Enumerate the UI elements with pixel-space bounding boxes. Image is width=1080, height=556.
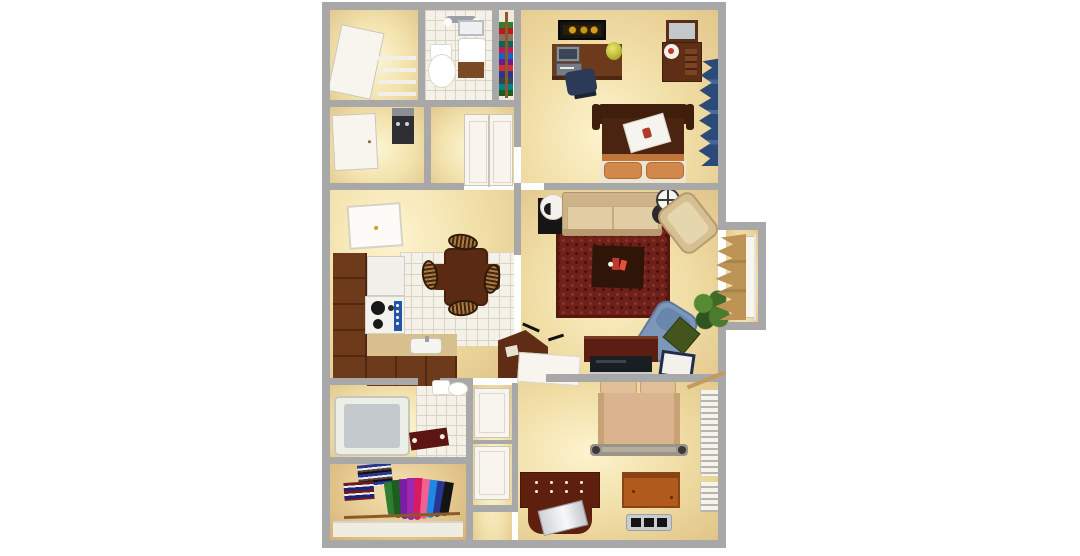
dresser-with-mirror bbox=[662, 20, 702, 82]
wall-alcove-right bbox=[758, 222, 766, 330]
dining-wall-frame bbox=[347, 202, 404, 250]
monitor-screen bbox=[559, 49, 577, 59]
frame-dot bbox=[374, 226, 378, 230]
closet-door-inset bbox=[479, 451, 505, 495]
utility-unit bbox=[392, 108, 414, 144]
red-decor bbox=[619, 260, 627, 271]
vanity-mirror bbox=[458, 20, 484, 36]
closet-door-inset bbox=[469, 121, 487, 183]
vanity-cabinet bbox=[458, 62, 484, 78]
coffee-table bbox=[591, 245, 644, 289]
wall-bath2-east bbox=[466, 378, 473, 540]
range-stove bbox=[365, 296, 405, 334]
range-panel bbox=[394, 301, 402, 331]
tv-glare bbox=[596, 360, 626, 363]
wall-bedroom1-west bbox=[514, 2, 521, 147]
closet-pole bbox=[505, 12, 508, 98]
dining-table bbox=[444, 248, 488, 306]
dresser2-top bbox=[520, 472, 600, 508]
bed1-pillow bbox=[604, 162, 642, 179]
decor-plate bbox=[664, 44, 679, 59]
wall-hall-mid bbox=[424, 100, 431, 190]
lamp-shade-shadow bbox=[544, 203, 556, 215]
burner bbox=[371, 301, 385, 315]
bed1-pillow bbox=[646, 162, 684, 179]
folded-clothes-stack bbox=[343, 481, 374, 501]
closet-door-split bbox=[488, 115, 490, 187]
vent-grates bbox=[631, 518, 641, 527]
wall-hall-south bbox=[330, 183, 464, 190]
wall-kitchen-south-a bbox=[330, 378, 418, 385]
wall-bedroom1-south bbox=[544, 183, 726, 190]
footboard-post bbox=[592, 446, 600, 454]
wall-bath1-linen bbox=[492, 2, 499, 102]
wall-outer-top bbox=[322, 2, 726, 10]
footboard-post bbox=[678, 446, 686, 454]
wooden-chest bbox=[622, 472, 680, 508]
dresser2-knobs bbox=[535, 481, 538, 484]
wire-shelf bbox=[378, 68, 416, 72]
wire-shelf bbox=[378, 92, 416, 96]
wall-art bbox=[558, 20, 606, 40]
wall-hallcloset-south bbox=[466, 505, 518, 512]
decor-red bbox=[668, 48, 674, 54]
floor-vent bbox=[626, 514, 672, 531]
tower-slot bbox=[560, 67, 574, 69]
tray-red-item bbox=[642, 127, 652, 139]
utility-vent bbox=[392, 108, 414, 116]
dresser-mirror bbox=[666, 20, 698, 42]
wall-storage-bath1 bbox=[418, 2, 425, 107]
hall-closet-door bbox=[474, 446, 510, 500]
range-knobs bbox=[396, 304, 399, 307]
curtain-rod bbox=[754, 234, 756, 320]
burner bbox=[373, 319, 383, 329]
door-knob bbox=[368, 140, 371, 143]
wall-art-pattern bbox=[563, 25, 601, 35]
wall-outer-right-top bbox=[718, 2, 726, 230]
wall-bath2-closet-divider bbox=[330, 457, 466, 464]
wall-bedroom2-west bbox=[512, 383, 518, 505]
toilet2-bowl bbox=[448, 382, 468, 396]
floorplan-render bbox=[0, 0, 1080, 556]
wire-shelf bbox=[378, 56, 416, 60]
kitchen-sink bbox=[410, 338, 442, 354]
utility-dials bbox=[396, 122, 400, 126]
bed2-footboard bbox=[590, 444, 688, 456]
wall-outer-bottom bbox=[322, 540, 726, 548]
toilet-bowl bbox=[428, 54, 456, 88]
television bbox=[590, 356, 652, 376]
footboard-rail bbox=[602, 447, 676, 452]
closet-door-inset bbox=[493, 121, 511, 183]
dresser-drawers bbox=[685, 49, 697, 75]
wall-hallcloset-divider bbox=[470, 440, 514, 444]
mat-dots bbox=[412, 438, 418, 444]
vanity-light-bulbs bbox=[444, 18, 452, 26]
hall-door bbox=[332, 113, 379, 171]
wall-outer-left bbox=[322, 2, 330, 548]
desk-papers bbox=[505, 345, 519, 357]
computer-monitor bbox=[556, 46, 580, 62]
sofa-front bbox=[563, 229, 661, 235]
wall-outer-right-bottom bbox=[718, 322, 726, 548]
hall-closet-door bbox=[474, 388, 510, 438]
bed2-comforter bbox=[598, 393, 680, 446]
closet-front-ledge bbox=[333, 521, 463, 537]
refrigerator bbox=[367, 256, 405, 296]
faucet bbox=[425, 336, 429, 342]
wire-shelf bbox=[378, 80, 416, 84]
kitchen-cabinets-west bbox=[333, 253, 367, 385]
chest-grain bbox=[632, 490, 635, 493]
sofa bbox=[562, 192, 662, 236]
bathtub-interior bbox=[344, 404, 400, 448]
closet-door-inset bbox=[479, 393, 505, 433]
desk-lamp bbox=[606, 42, 622, 60]
bathtub bbox=[334, 396, 410, 456]
hall-closet-double-doors bbox=[464, 114, 513, 186]
desk-chair bbox=[564, 68, 598, 97]
wall-living-west-stub bbox=[514, 183, 521, 255]
